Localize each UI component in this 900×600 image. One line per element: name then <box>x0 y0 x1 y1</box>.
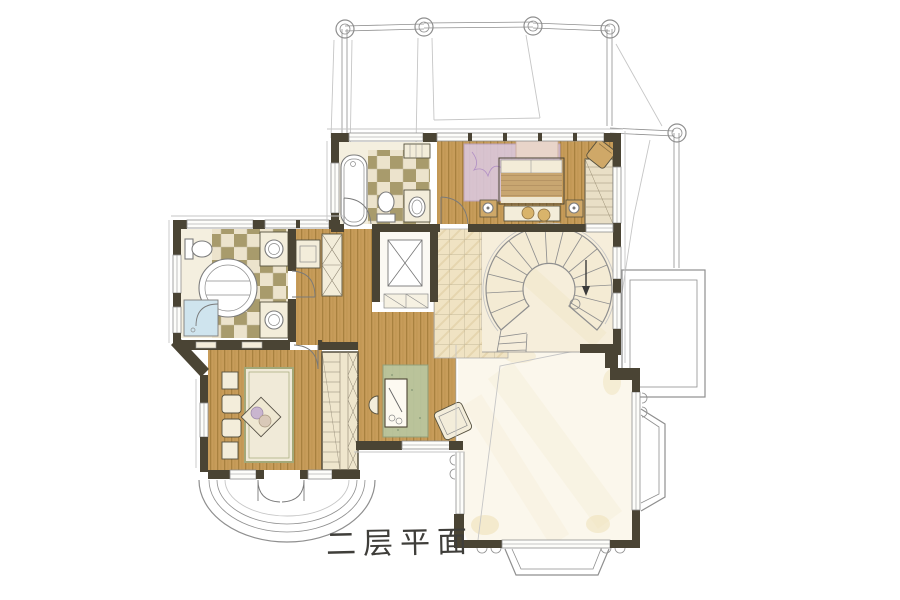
hall-closet <box>296 240 320 268</box>
sw-wardrobe <box>322 352 358 470</box>
side-table <box>222 442 238 459</box>
side-table <box>222 372 238 389</box>
desk <box>385 379 407 427</box>
chair <box>222 395 241 413</box>
sink-vanity-top <box>260 232 288 266</box>
chair <box>222 419 241 437</box>
pergola-columns <box>336 17 686 142</box>
elevator <box>372 232 438 308</box>
floor-plan-canvas: 二层平面 <box>0 0 900 600</box>
bathtub <box>341 155 367 226</box>
plan-title: 二层平面 <box>326 516 475 563</box>
pouf <box>538 209 550 221</box>
right-bay-window <box>641 409 665 511</box>
table-cushion <box>259 415 271 427</box>
nightstand-left <box>480 200 497 217</box>
toilet <box>378 192 394 212</box>
toilet <box>185 239 212 259</box>
floor-plan-drawing <box>0 0 900 600</box>
bath-shelf <box>404 144 430 158</box>
nightstand-right <box>566 200 583 217</box>
master-bedroom <box>464 139 616 224</box>
hall-cabinet <box>322 234 342 296</box>
shower <box>184 300 218 336</box>
pouf <box>522 207 534 219</box>
bed <box>499 158 564 204</box>
bedside-mat <box>516 141 558 158</box>
bottom-bay-window <box>505 549 609 575</box>
sink-vanity-bottom <box>260 302 288 338</box>
balcony-french-doors <box>258 480 304 502</box>
wardrobe <box>585 159 613 224</box>
